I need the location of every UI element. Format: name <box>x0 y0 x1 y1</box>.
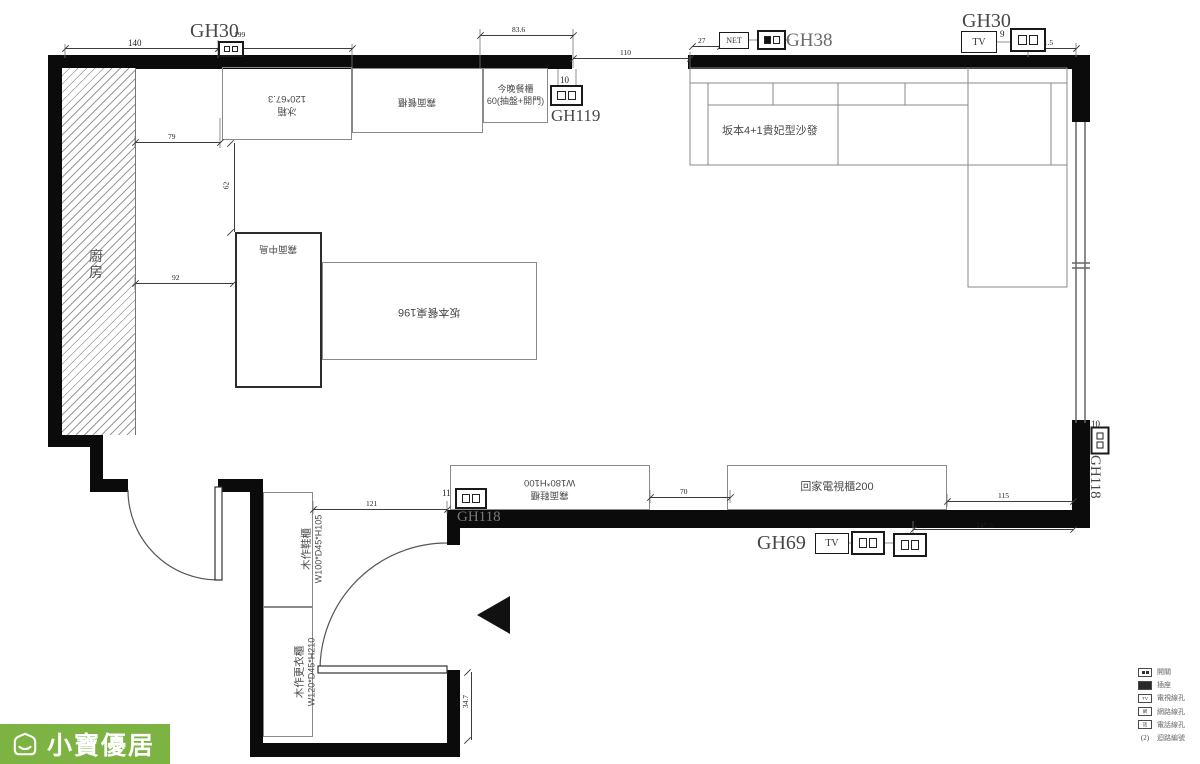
outlet-icon <box>218 41 244 57</box>
legend-row: 話電話線孔 <box>1138 720 1185 730</box>
marker-gh118-side: GH118 <box>1086 455 1103 499</box>
wardrobe-labels: 木作更衣櫃 W120*D45*H210 <box>291 590 321 755</box>
entry-cabinet-label: 霧面鞋櫃 <box>531 488 569 499</box>
outlet-switch-icon <box>757 30 786 50</box>
outlet-icon <box>1138 681 1152 690</box>
marker-gh69: GH69 <box>757 532 806 555</box>
outlet-icon <box>455 488 487 509</box>
dimension-label: 121 <box>366 499 377 508</box>
wall-top-right <box>688 55 1090 69</box>
tv-jack-icon: TV <box>961 31 997 53</box>
dimension-label: 11 <box>442 488 451 498</box>
legend-row: 插座 <box>1138 680 1171 690</box>
tv-jack-icon: TV <box>815 533 849 554</box>
dimension-label: 110 <box>620 48 631 57</box>
circuit-count: (2) <box>1138 734 1152 743</box>
tv-cabinet-label: 回家電視櫃200 <box>800 481 873 495</box>
outlet-icon <box>851 531 885 555</box>
shoe-cabinet-label: 木作鞋櫃 <box>300 528 313 570</box>
marker-gh118-wall: GH118 <box>457 509 501 526</box>
logo-icon <box>10 731 40 757</box>
legend-row: (2)迴路編號 <box>1138 733 1185 743</box>
matte-dining-cabinet-label: 霧面餐櫃 <box>398 95 436 107</box>
wall-foyer-top <box>90 479 128 492</box>
island-label: 霧面中島 <box>259 242 297 254</box>
dimension-label: 83.6 <box>512 25 525 34</box>
tonight-cabinet-box: 今晚餐櫃 60(抽盤+開門) <box>483 68 548 123</box>
legend-row: 網網路線孔 <box>1138 707 1185 717</box>
phone-jack-icon: 話 <box>1138 720 1152 729</box>
matte-dining-cabinet-box: 霧面餐櫃 <box>352 68 483 133</box>
legend-label: 插座 <box>1157 680 1171 690</box>
outlet-icon <box>550 85 583 106</box>
dimension-label: 10 <box>560 75 569 85</box>
dimension-label: 9 <box>1000 29 1005 39</box>
dimension-label: 34.7 <box>461 695 470 708</box>
switch-icon <box>1138 668 1152 677</box>
dimension-label: 92 <box>172 273 180 282</box>
dimension-label: 79 <box>168 132 176 141</box>
legend-label: 迴路編號 <box>1157 733 1185 743</box>
marker-gh30-left: GH30 <box>190 20 239 43</box>
wall-foyer-bottom <box>250 743 460 757</box>
wall-foyer-right-lower <box>447 670 460 757</box>
outlet-icon <box>1010 28 1046 52</box>
wardrobe-size-label: W120*D45*H210 <box>306 638 317 707</box>
dimension-label: 199 <box>234 30 245 39</box>
logo-text: 小寶優居 <box>47 726 155 762</box>
legend-row: 開關 <box>1138 667 1171 677</box>
shoe-cabinet-size-label: W100*D45*H105 <box>313 515 324 584</box>
brand-logo: 小寶優居 <box>0 724 170 764</box>
wall-left-step <box>48 433 103 447</box>
wall-living-bottom <box>447 510 1090 528</box>
kitchen-room-label: 廚房 <box>88 248 104 280</box>
dimension-label: 115 <box>998 491 1009 500</box>
wardrobe-label: 木作更衣櫃 <box>293 646 306 699</box>
dimension-label: 27 <box>698 36 706 45</box>
tonight-cabinet-label: 今晚餐櫃 <box>497 84 533 94</box>
dimension-label: 147.5 <box>976 521 993 530</box>
legend-label: 電視線孔 <box>1157 693 1185 703</box>
wall-right-upper <box>1072 55 1090 122</box>
legend-label: 開關 <box>1157 667 1171 677</box>
tv-cabinet-box: 回家電視櫃200 <box>727 465 947 510</box>
fridge-box: 冰箱 120*67.3 <box>222 67 352 140</box>
marker-gh119: GH119 <box>551 106 600 126</box>
dimension-label: 62 <box>221 182 230 190</box>
legend-label: 網路線孔 <box>1157 707 1185 717</box>
dining-table-box: 坂本餐桌196 <box>322 262 537 360</box>
entry-cabinet-size-label: W180*H100 <box>524 477 575 488</box>
marker-gh38: GH38 <box>786 30 832 52</box>
sofa-label: 坂本4+1貴妃型沙發 <box>722 125 818 139</box>
wall-left <box>48 55 62 447</box>
fridge-size-label: 120*67.3 <box>268 93 306 104</box>
outlet-icon <box>893 533 927 557</box>
island-box: 霧面中島 <box>235 232 322 388</box>
net-jack-icon: NET <box>719 32 749 49</box>
dining-table-label: 坂本餐桌196 <box>398 304 460 318</box>
dimension-label: 140 <box>128 38 142 48</box>
tv-jack-icon: TV <box>1138 694 1152 703</box>
legend-row: TV電視線孔 <box>1138 693 1185 703</box>
floor-plan: 廚房 冰箱 120*67.3 霧面餐櫃 今晚餐櫃 60(抽盤+開門) 霧面中島 … <box>0 0 1200 764</box>
wall-foyer-left <box>250 479 263 757</box>
outlet-icon <box>1091 427 1110 455</box>
net-jack-icon: 網 <box>1138 707 1152 716</box>
fridge-label: 冰箱 <box>277 104 296 115</box>
tonight-cabinet-size-label: 60(抽盤+開門) <box>487 96 544 106</box>
dimension-label: 70 <box>680 487 688 496</box>
legend-label: 電話線孔 <box>1157 720 1185 730</box>
